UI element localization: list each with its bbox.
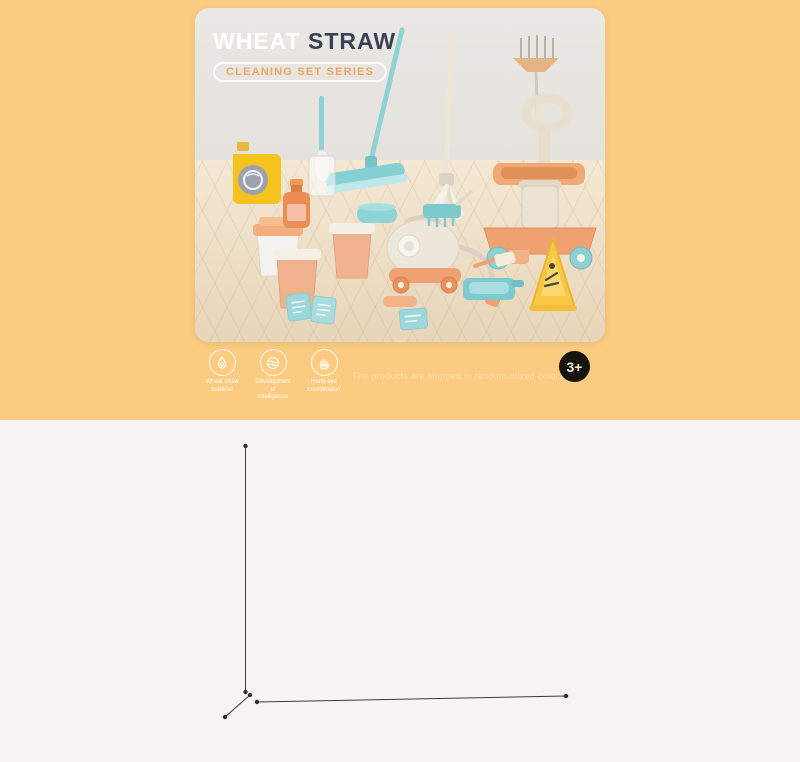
trolley-graphic: [484, 35, 596, 269]
feature-material: Wheat straw material: [201, 349, 243, 402]
photo-headline: WHEAT STRAW CLEANING SET SERIES: [213, 28, 396, 82]
feature-label-line: material: [201, 387, 243, 395]
product-listing-page: WHEAT STRAW CLEANING SET SERIES Wheat st…: [0, 0, 800, 762]
watermark-note: The products are shipped in random mixed…: [352, 371, 587, 381]
droplet-icon: [209, 349, 236, 376]
box-dimensions-section: WHEAT STRAW: [0, 420, 800, 762]
hand-icon: [311, 349, 338, 376]
detergent-jug-graphic: [233, 142, 281, 204]
feature-coordination: Hand-eye coordination: [303, 349, 345, 402]
feature-label-line: intelligence: [252, 394, 294, 402]
top-hero-section: WHEAT STRAW CLEANING SET SERIES Wheat st…: [0, 0, 800, 420]
headline-word-straw: STRAW: [308, 28, 396, 54]
soap-dish-graphic: [357, 203, 397, 223]
product-photo-card: WHEAT STRAW CLEANING SET SERIES: [195, 8, 605, 342]
headline-word-wheat: WHEAT: [213, 28, 301, 54]
feature-intelligence: Development of intelligence: [252, 349, 294, 402]
spray-bottle-graphic: [283, 179, 310, 228]
measurement-lines: [0, 420, 800, 762]
series-badge: CLEANING SET SERIES: [213, 62, 387, 82]
string-mop-graphic: [431, 36, 462, 220]
feature-label-line: Hand-eye: [303, 379, 345, 387]
feature-label-line: Wheat straw: [201, 379, 243, 387]
age-badge: 3+: [559, 351, 590, 382]
feature-label-line: Development of: [252, 379, 294, 394]
feature-label-line: coordination: [303, 387, 345, 395]
features-row: Wheat straw material Development of inte…: [201, 349, 345, 402]
intelligence-icon: [260, 349, 287, 376]
toilet-brush-graphic: [309, 96, 335, 196]
